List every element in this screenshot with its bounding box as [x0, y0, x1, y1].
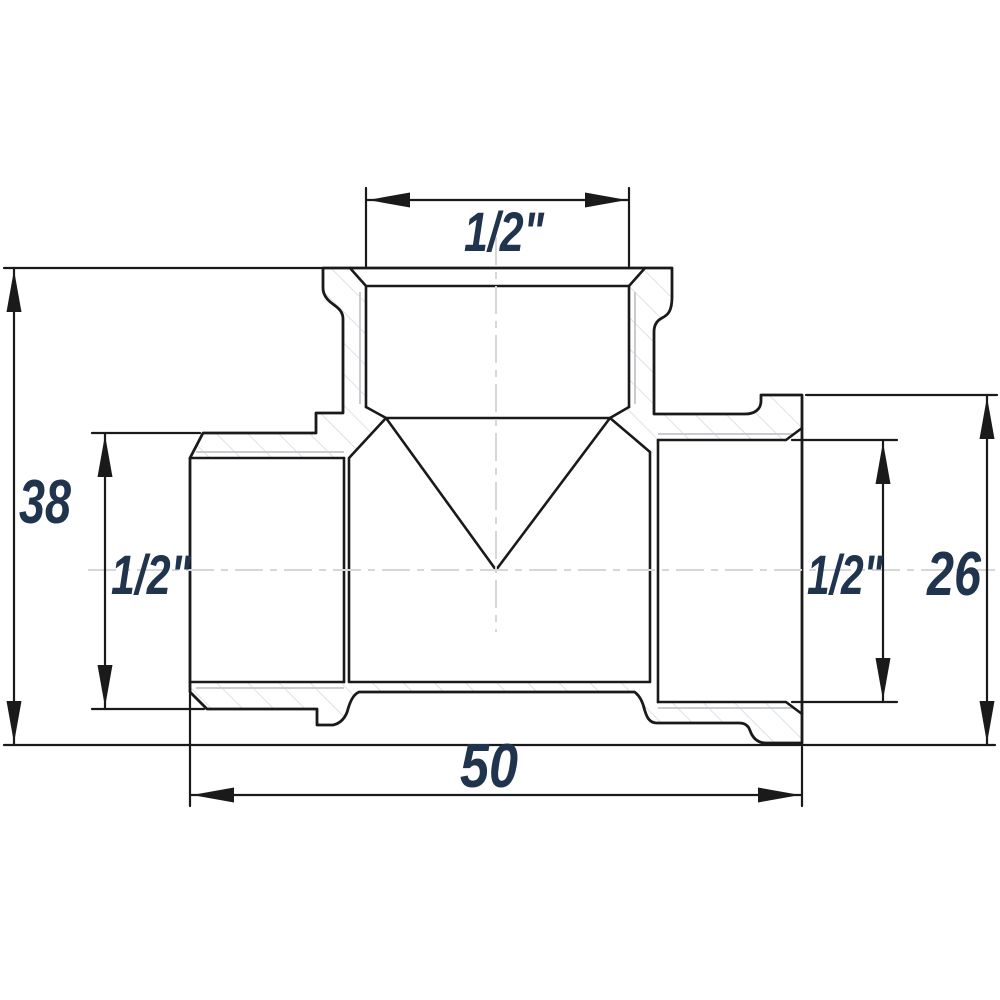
- dim-arrow: [368, 193, 410, 208]
- dim-overall-width-label: 50: [460, 732, 518, 801]
- dim-top-thread-label: 1/2": [464, 200, 545, 263]
- dim-arrow: [980, 397, 995, 439]
- dim-left-thread-label: 1/2": [111, 543, 192, 606]
- tee-fitting-drawing: 1/2" 1/2" 38 1/2": [0, 0, 1000, 1000]
- dim-right-thread-label: 1/2": [807, 543, 884, 606]
- dim-arrow: [876, 658, 891, 700]
- dim-arrow: [876, 442, 891, 484]
- dim-overall-height-label: 38: [19, 468, 71, 537]
- dim-arrow: [7, 270, 22, 312]
- dim-arrow: [192, 788, 234, 803]
- dim-right-thread: 1/2": [792, 440, 897, 702]
- technical-drawing-sheet: 1/2" 1/2" 38 1/2": [0, 0, 1000, 1000]
- dim-arrow: [758, 788, 800, 803]
- dim-arrow: [98, 665, 113, 707]
- dim-arrow: [980, 701, 995, 743]
- dim-right-outer-diameter-label: 26: [926, 540, 981, 609]
- dim-top-thread: 1/2": [366, 188, 629, 266]
- dim-arrow: [7, 701, 22, 743]
- dim-arrow: [98, 435, 113, 477]
- dim-arrow: [585, 193, 627, 208]
